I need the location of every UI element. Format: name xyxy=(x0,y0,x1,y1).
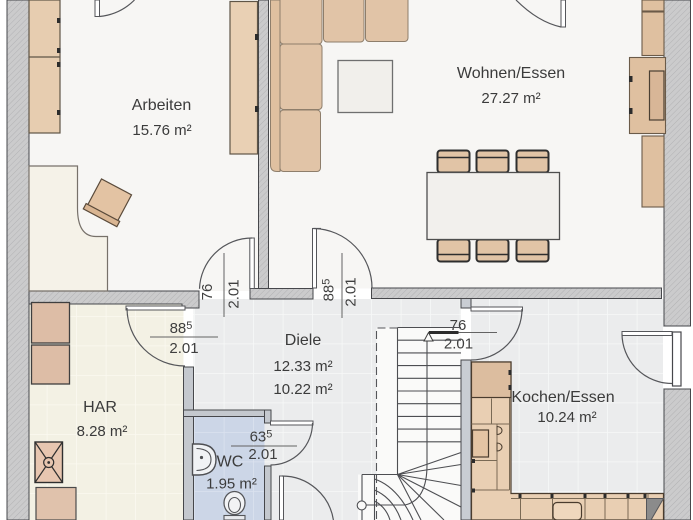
svg-text:HAR: HAR xyxy=(83,399,117,416)
svg-text:2.01: 2.01 xyxy=(226,279,243,308)
svg-text:12.33 m²: 12.33 m² xyxy=(273,358,332,375)
svg-text:2.01: 2.01 xyxy=(169,340,198,357)
svg-text:Diele: Diele xyxy=(285,332,322,349)
svg-text:Wohnen/Essen: Wohnen/Essen xyxy=(457,65,565,82)
svg-text:27.27 m²: 27.27 m² xyxy=(481,90,540,107)
svg-text:2.01: 2.01 xyxy=(248,446,277,463)
svg-text:Arbeiten: Arbeiten xyxy=(132,97,192,114)
svg-text:76: 76 xyxy=(199,284,216,301)
svg-text:10.22 m²: 10.22 m² xyxy=(273,381,332,398)
svg-text:WC: WC xyxy=(217,454,244,471)
svg-text:76: 76 xyxy=(450,317,467,334)
svg-text:2.01: 2.01 xyxy=(444,336,473,353)
svg-text:Kochen/Essen: Kochen/Essen xyxy=(511,389,614,406)
svg-text:2.01: 2.01 xyxy=(343,277,360,306)
svg-text:8.28 m²: 8.28 m² xyxy=(77,423,128,440)
svg-text:10.24 m²: 10.24 m² xyxy=(537,409,596,426)
svg-text:1.95 m²: 1.95 m² xyxy=(206,476,257,493)
svg-text:15.76 m²: 15.76 m² xyxy=(132,122,191,139)
